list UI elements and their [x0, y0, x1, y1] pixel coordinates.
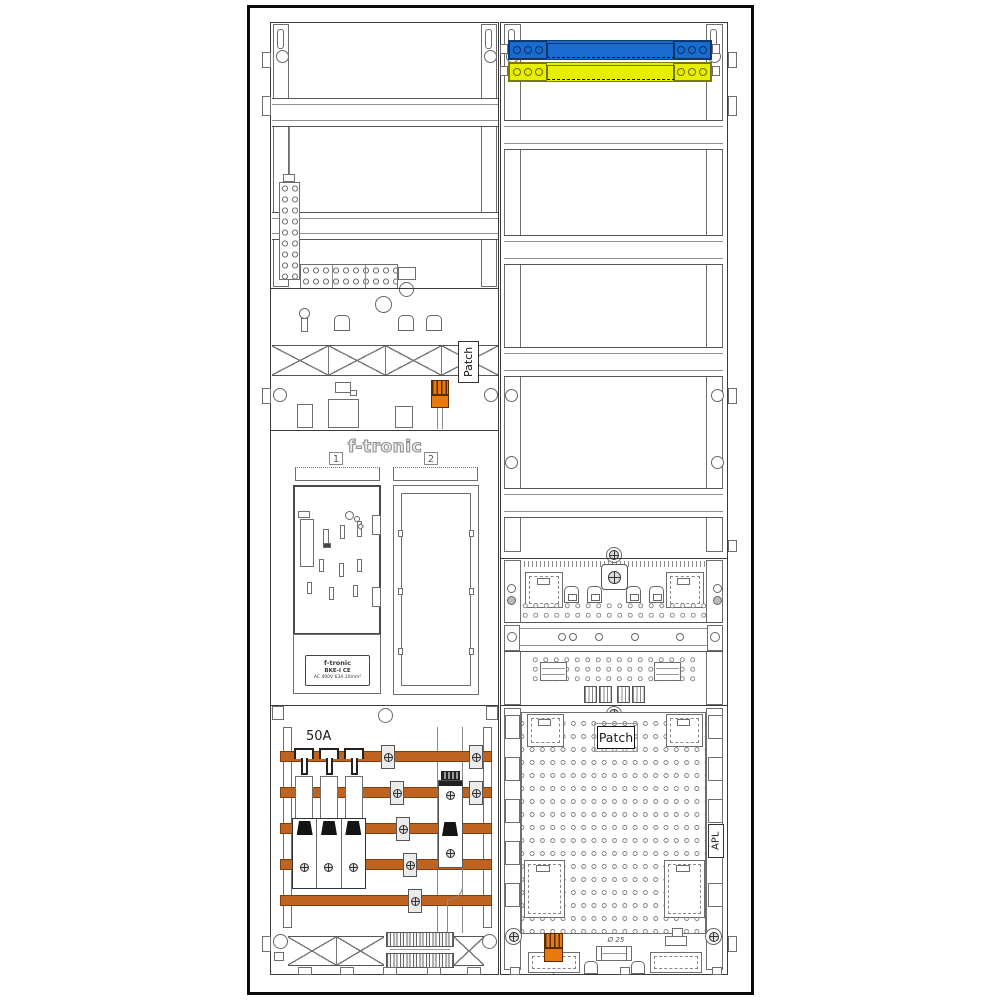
bke-slot	[340, 525, 345, 539]
screw-icon	[709, 932, 719, 942]
din-rail	[504, 347, 723, 377]
vent-holes	[520, 601, 710, 620]
din-rail	[504, 488, 723, 518]
terminal-block	[673, 63, 711, 81]
bke-contact	[323, 543, 331, 548]
din-rail	[272, 212, 498, 240]
meter-plate-strip	[393, 467, 478, 481]
terminal-hole	[513, 68, 521, 76]
slot2-text: 2	[428, 454, 434, 465]
busbar-clamp	[390, 781, 404, 805]
side-hole	[711, 456, 724, 469]
hinge-block	[505, 757, 520, 781]
screw-icon	[406, 861, 415, 870]
frame-tick	[469, 588, 474, 595]
wire	[447, 899, 448, 933]
neutral-busbar	[508, 40, 712, 60]
cable-entry	[584, 961, 598, 974]
corner-bracket	[272, 706, 284, 720]
breaker-fork-terminal	[344, 748, 364, 778]
cable-clip	[584, 686, 597, 703]
bke-slot	[353, 585, 358, 597]
terminal-strip-horizontal	[300, 264, 398, 289]
frame-tick	[398, 648, 403, 655]
cable-entry	[334, 315, 350, 331]
screw-icon	[472, 789, 481, 798]
terminal-comb	[386, 932, 454, 947]
terminal-hole	[699, 68, 707, 76]
busbar-clamp	[396, 817, 410, 841]
side-hole	[711, 389, 724, 402]
cable-entry	[426, 315, 442, 331]
mounting-tab	[728, 388, 737, 404]
terminal-hole	[688, 68, 696, 76]
channel-hole	[713, 596, 722, 605]
terminal-hole	[513, 46, 521, 54]
hinge-block	[708, 883, 723, 907]
plate-notch	[372, 587, 381, 607]
terminal-comb	[386, 953, 454, 968]
mounting-tab	[728, 96, 737, 116]
bke-slot	[339, 563, 344, 577]
empty-meter-plate-frame	[401, 493, 471, 686]
patch-panel-label: Patch	[597, 726, 635, 749]
rail-hole	[595, 633, 603, 641]
mounting-tab	[728, 52, 737, 68]
screw-icon	[384, 753, 393, 762]
wire	[442, 408, 443, 429]
terminal-block	[509, 41, 547, 59]
hinge-block	[708, 715, 723, 739]
side-hole	[273, 388, 287, 402]
bus-end-tab	[500, 44, 508, 54]
section-divider	[271, 430, 498, 431]
step-bracket	[672, 928, 683, 937]
frame-tick	[398, 588, 403, 595]
center-latch	[601, 564, 628, 590]
apl-label-text: APL	[711, 832, 722, 850]
cross-brace-rail	[288, 936, 384, 966]
profile-hole	[484, 50, 497, 63]
module-blank	[540, 662, 567, 681]
sealing-screw-icon	[354, 516, 360, 522]
screw-icon	[446, 849, 455, 858]
channel-hole	[507, 596, 516, 605]
wiring-diagram: Patch f-tronic 1 2	[0, 0, 1000, 1000]
mounting-tab	[262, 52, 271, 68]
single-pole-device	[438, 771, 463, 868]
section-divider	[501, 558, 727, 559]
plate-notch	[372, 515, 381, 535]
hinge-block	[708, 799, 723, 823]
busbar-clamp	[381, 745, 395, 769]
mounting-tab	[262, 96, 271, 116]
rail-hole	[558, 633, 566, 641]
cabinet-foot	[620, 967, 630, 975]
screw-icon	[472, 753, 481, 762]
breaker-neck	[320, 776, 338, 820]
patch-label-text: Patch	[599, 730, 633, 745]
meter-slot-number: 2	[424, 452, 438, 465]
clamp-flag	[350, 390, 357, 396]
comb-link	[390, 949, 450, 950]
terminal-hole	[535, 68, 543, 76]
grommet	[375, 296, 392, 313]
screw-icon	[509, 932, 519, 942]
terminal-cap	[283, 174, 295, 182]
side-hole	[505, 456, 518, 469]
breaker-rating-label: 50A	[306, 729, 331, 744]
apl-label: APL	[708, 824, 724, 858]
breaker-fork-terminal	[319, 748, 339, 778]
orange-plug-connector	[431, 380, 449, 395]
orange-plug-connector	[544, 948, 563, 962]
profile-slot	[277, 29, 284, 49]
profile-channel	[504, 24, 521, 552]
module-blank	[654, 662, 681, 681]
latch-screw-icon	[608, 571, 621, 584]
junction-box	[297, 404, 313, 428]
cabinet-foot	[467, 967, 481, 975]
breaker-pole	[317, 819, 341, 888]
junction-box	[328, 399, 359, 428]
roller	[399, 282, 414, 297]
screw-icon	[393, 789, 402, 798]
din-rail	[504, 235, 723, 265]
keystone-slot	[677, 578, 690, 585]
mounting-tab	[262, 388, 271, 404]
bke-slot	[300, 519, 314, 567]
rail-hole	[631, 633, 639, 641]
channel-hole	[713, 584, 722, 593]
terminal-block	[673, 41, 711, 59]
conduit-note: Ø 25	[598, 936, 634, 944]
orange-plug-connector	[544, 933, 563, 948]
bottom-box-inner	[654, 956, 698, 969]
hinge-block	[708, 757, 723, 781]
bke-label-line3: AC 400V 63A 10mm²	[306, 675, 369, 680]
corner-bracket	[486, 706, 498, 720]
terminal-hole	[535, 46, 543, 54]
busbar-body	[547, 65, 675, 80]
cable-clip	[617, 686, 630, 703]
sealing-screw-icon	[345, 511, 354, 520]
conduit-note-text: Ø 25	[608, 936, 625, 944]
latch	[274, 952, 284, 961]
patch-cable-label: Patch	[458, 341, 479, 383]
screw-icon	[446, 791, 455, 800]
side-hole	[505, 389, 518, 402]
cabinet-foot	[712, 967, 722, 975]
contact-wedge-icon	[297, 821, 313, 835]
bke-slot	[319, 559, 324, 572]
cabinet-foot	[427, 967, 441, 975]
din-rail	[272, 98, 498, 127]
breaker-body	[292, 818, 366, 889]
clamp-bracket	[398, 267, 416, 280]
cabinet-foot	[510, 967, 520, 975]
busbar-clamp	[403, 853, 417, 877]
rail-hole	[569, 633, 577, 641]
din-rail	[504, 120, 723, 150]
terminal-hole	[524, 68, 532, 76]
terminal-hole	[688, 46, 696, 54]
module-line	[656, 668, 679, 669]
busbar-clamp	[408, 889, 422, 913]
screw-icon	[399, 825, 408, 834]
mounting-tab	[262, 936, 271, 952]
contact-wedge-icon	[442, 822, 458, 836]
meter-slot-number: 1	[329, 452, 343, 465]
hinge-hole	[710, 632, 720, 642]
hinge-block	[505, 799, 520, 823]
hinge-hole	[507, 632, 517, 642]
busbar-clamp	[469, 745, 483, 769]
busbar-clamp	[469, 781, 483, 805]
meter-plate-strip	[295, 467, 380, 481]
profile-channel	[481, 24, 497, 287]
bke-slot	[298, 511, 310, 518]
cutout-slot	[676, 865, 690, 872]
step-bracket	[665, 936, 687, 946]
mounting-tab	[728, 540, 737, 552]
keyhole-stem	[301, 318, 308, 332]
busbar-body	[547, 43, 675, 58]
screw-icon	[300, 863, 309, 872]
cabinet-foot	[298, 967, 312, 975]
channel-hole	[507, 584, 516, 593]
cutout-slot	[536, 865, 550, 872]
cabinet-foot	[340, 967, 354, 975]
junction-box	[395, 406, 413, 428]
profile-slot	[485, 29, 492, 49]
hinge-block	[505, 841, 520, 865]
roller	[273, 934, 288, 949]
terminal-hole	[699, 46, 707, 54]
cable-entry	[631, 961, 645, 974]
orange-plug-connector	[431, 395, 449, 408]
roller	[482, 934, 497, 949]
terminal-block	[509, 63, 547, 81]
mounting-tab	[728, 936, 737, 952]
brand-logo: f-tronic	[300, 437, 470, 457]
sls-main-breaker	[292, 748, 366, 889]
profile-channel	[706, 24, 723, 552]
rail-hole	[676, 633, 684, 641]
breaker-pole	[293, 819, 317, 888]
slot1-text: 1	[333, 454, 339, 465]
rating-text: 50A	[306, 729, 331, 744]
breaker-fork-terminal	[294, 748, 314, 778]
bus-end-tab	[500, 66, 508, 76]
grommet	[378, 708, 393, 723]
brand-text: f-tronic	[348, 437, 422, 457]
device-band	[439, 781, 462, 786]
section-divider	[271, 705, 498, 706]
module-line	[656, 674, 679, 675]
din-rail	[504, 622, 723, 652]
breaker-neck	[345, 776, 363, 820]
frame-tick	[469, 648, 474, 655]
door-latch	[705, 928, 722, 945]
wire	[289, 127, 290, 174]
pe-busbar	[508, 62, 712, 82]
cable-clip	[632, 686, 645, 703]
bke-slot	[357, 559, 362, 572]
patch-label-text: Patch	[462, 347, 475, 377]
bus-end-tab	[712, 66, 720, 76]
terminal-hole	[677, 68, 685, 76]
terminal-divider	[365, 265, 366, 288]
busbar-copper	[280, 895, 492, 906]
breaker-pole	[342, 819, 365, 888]
hinge-block	[505, 883, 520, 907]
module-line	[542, 674, 565, 675]
frame-tick	[398, 530, 403, 537]
keystone-slot	[537, 578, 550, 585]
contact-wedge-icon	[321, 821, 337, 835]
frame-tick	[469, 530, 474, 537]
screw-icon	[349, 863, 358, 872]
bke-meter-plate	[293, 485, 381, 635]
cable-entry	[398, 315, 414, 331]
profile-hole	[276, 50, 289, 63]
bus-end-tab	[712, 44, 720, 54]
device-cap	[441, 771, 460, 780]
wire	[437, 408, 438, 429]
terminal-hole	[677, 46, 685, 54]
cross-brace-rail	[454, 936, 484, 966]
bke-slot	[329, 587, 334, 600]
hinge-block	[505, 715, 520, 739]
terminal-hole	[524, 46, 532, 54]
bke-rating-label: f-tronic BKE-I CE AC 400V 63A 10mm²	[305, 655, 370, 686]
terminal-strip-vertical	[279, 182, 300, 280]
screw-icon	[324, 863, 333, 872]
bke-slot	[307, 582, 312, 594]
contact-wedge-icon	[345, 821, 361, 835]
cable-clip	[599, 686, 612, 703]
clamp-block	[335, 382, 351, 393]
side-hole	[484, 388, 498, 402]
module-line	[542, 668, 565, 669]
cutout-slot	[677, 719, 690, 726]
bke-label-line1: f-tronic	[306, 659, 369, 667]
screw-icon	[411, 897, 420, 906]
door-latch	[505, 928, 522, 945]
terminal-divider	[332, 265, 333, 288]
conduit-line	[602, 953, 626, 954]
section-divider	[271, 288, 498, 289]
conduit-cap	[626, 946, 632, 961]
bke-label-line2: BKE-I CE	[306, 668, 369, 674]
breaker-neck	[295, 776, 313, 820]
cutout-slot	[538, 719, 551, 726]
cabinet-foot	[383, 967, 397, 975]
